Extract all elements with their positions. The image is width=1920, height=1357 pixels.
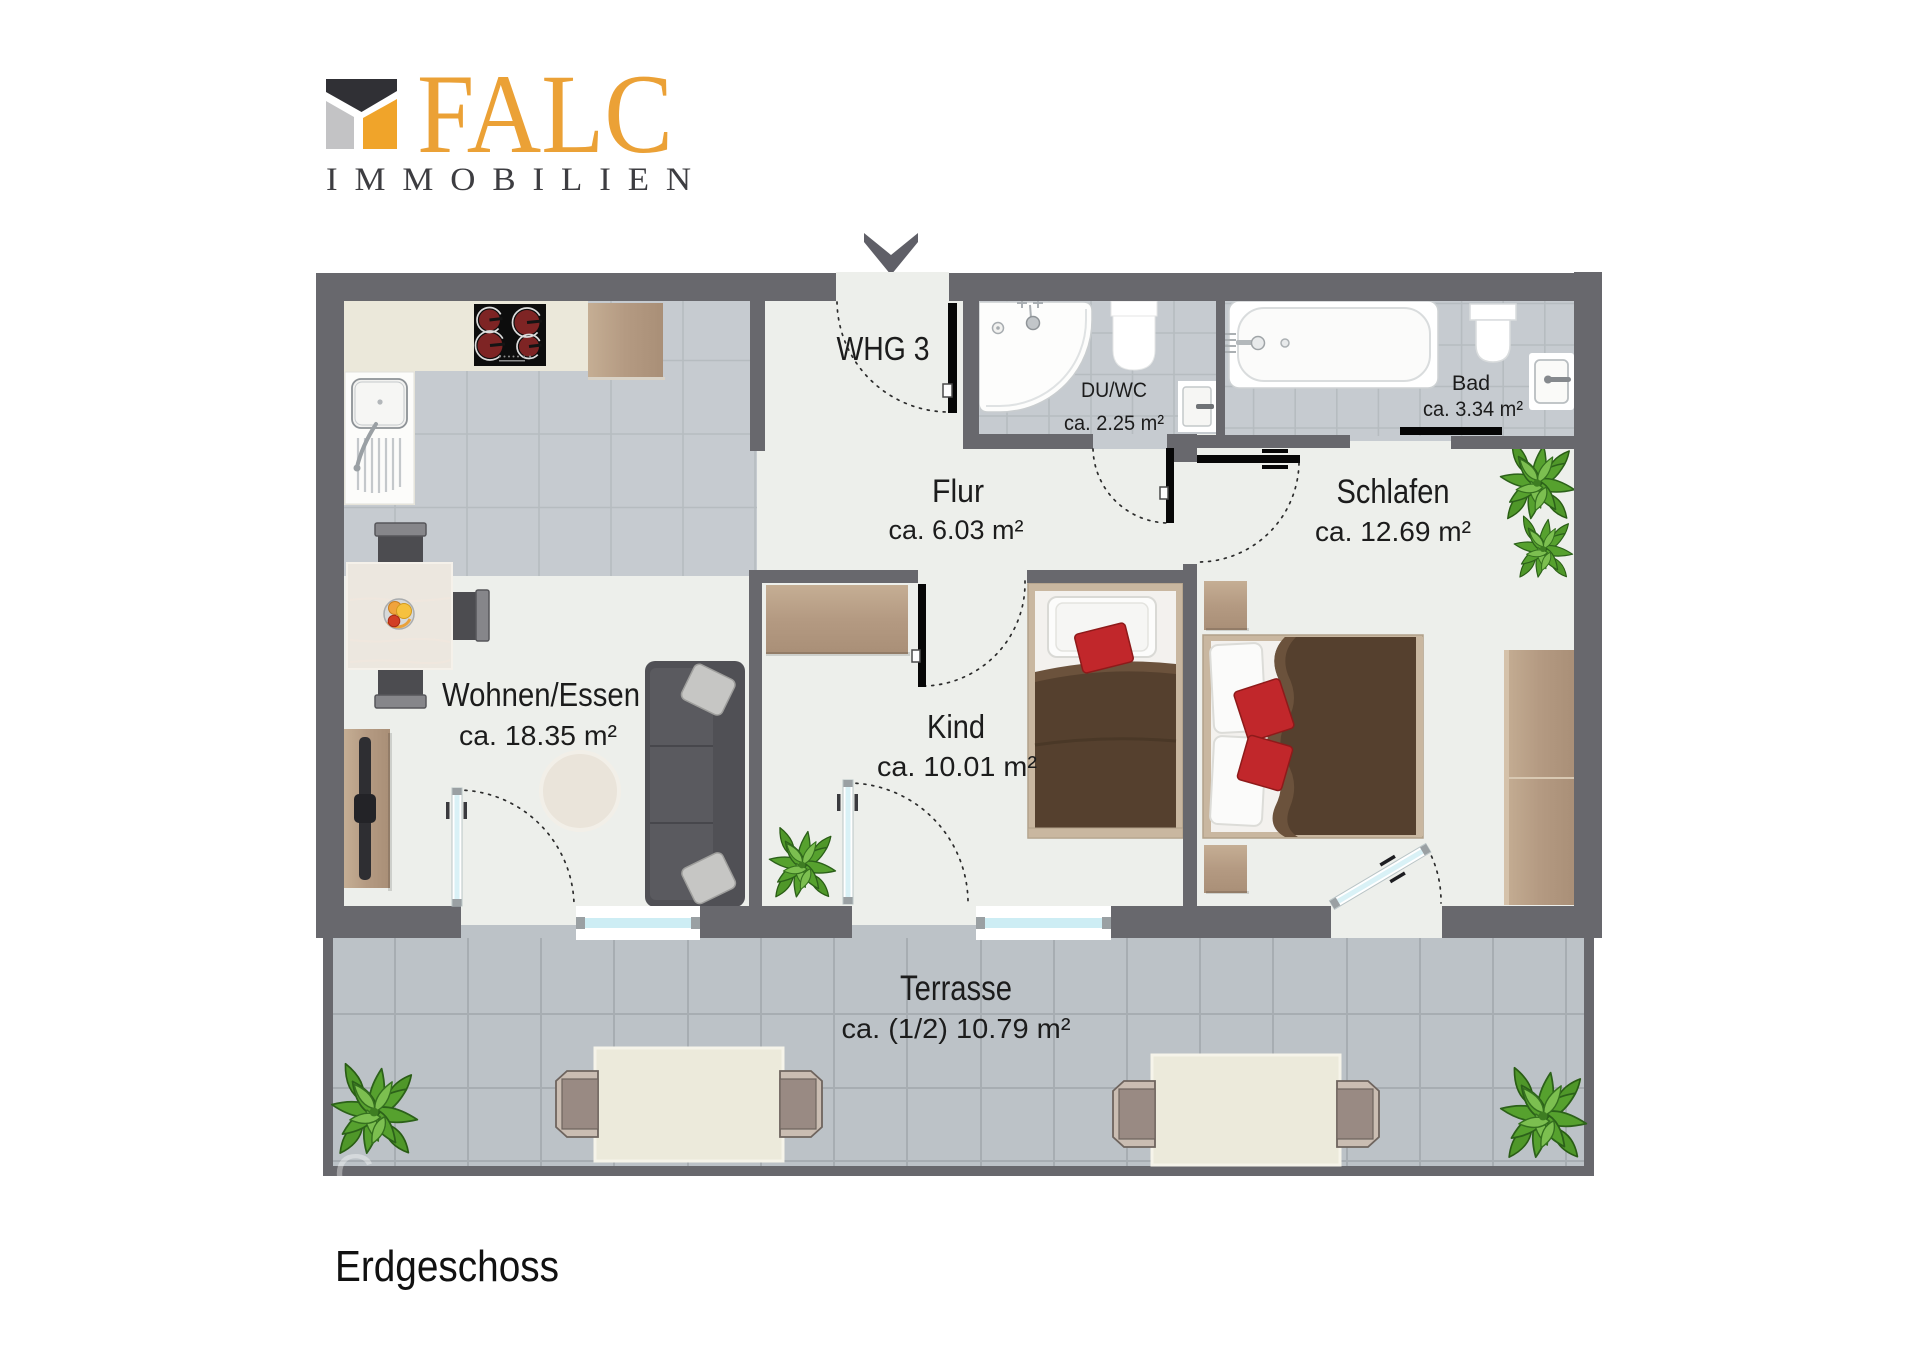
svg-text:IMMOBILIEN: IMMOBILIEN xyxy=(326,162,708,198)
svg-text:Schlafen: Schlafen xyxy=(1337,473,1450,511)
svg-text:ca. 10.01 m²: ca. 10.01 m² xyxy=(877,751,1037,782)
svg-text:Bad: Bad xyxy=(1452,371,1490,395)
svg-text:ca. 2.25 m²: ca. 2.25 m² xyxy=(1064,411,1164,435)
svg-text:Kind: Kind xyxy=(927,708,985,745)
svg-text:ca. 3.34 m²: ca. 3.34 m² xyxy=(1423,397,1523,421)
svg-text:C: C xyxy=(334,1142,374,1205)
svg-text:WHG 3: WHG 3 xyxy=(837,330,930,367)
svg-text:ca. 12.69 m²: ca. 12.69 m² xyxy=(1315,516,1471,547)
svg-text:DU/WC: DU/WC xyxy=(1081,379,1147,402)
svg-text:Wohnen/Essen: Wohnen/Essen xyxy=(442,676,640,713)
svg-text:Erdgeschoss: Erdgeschoss xyxy=(335,1242,559,1291)
svg-text:Flur: Flur xyxy=(932,473,984,509)
svg-text:ca. 18.35 m²: ca. 18.35 m² xyxy=(459,720,617,751)
svg-text:ca. 6.03 m²: ca. 6.03 m² xyxy=(888,515,1023,545)
svg-text:Terrasse: Terrasse xyxy=(900,969,1012,1008)
svg-text:FALC: FALC xyxy=(417,52,673,177)
svg-text:ca. (1/2) 10.79 m²: ca. (1/2) 10.79 m² xyxy=(842,1013,1071,1044)
